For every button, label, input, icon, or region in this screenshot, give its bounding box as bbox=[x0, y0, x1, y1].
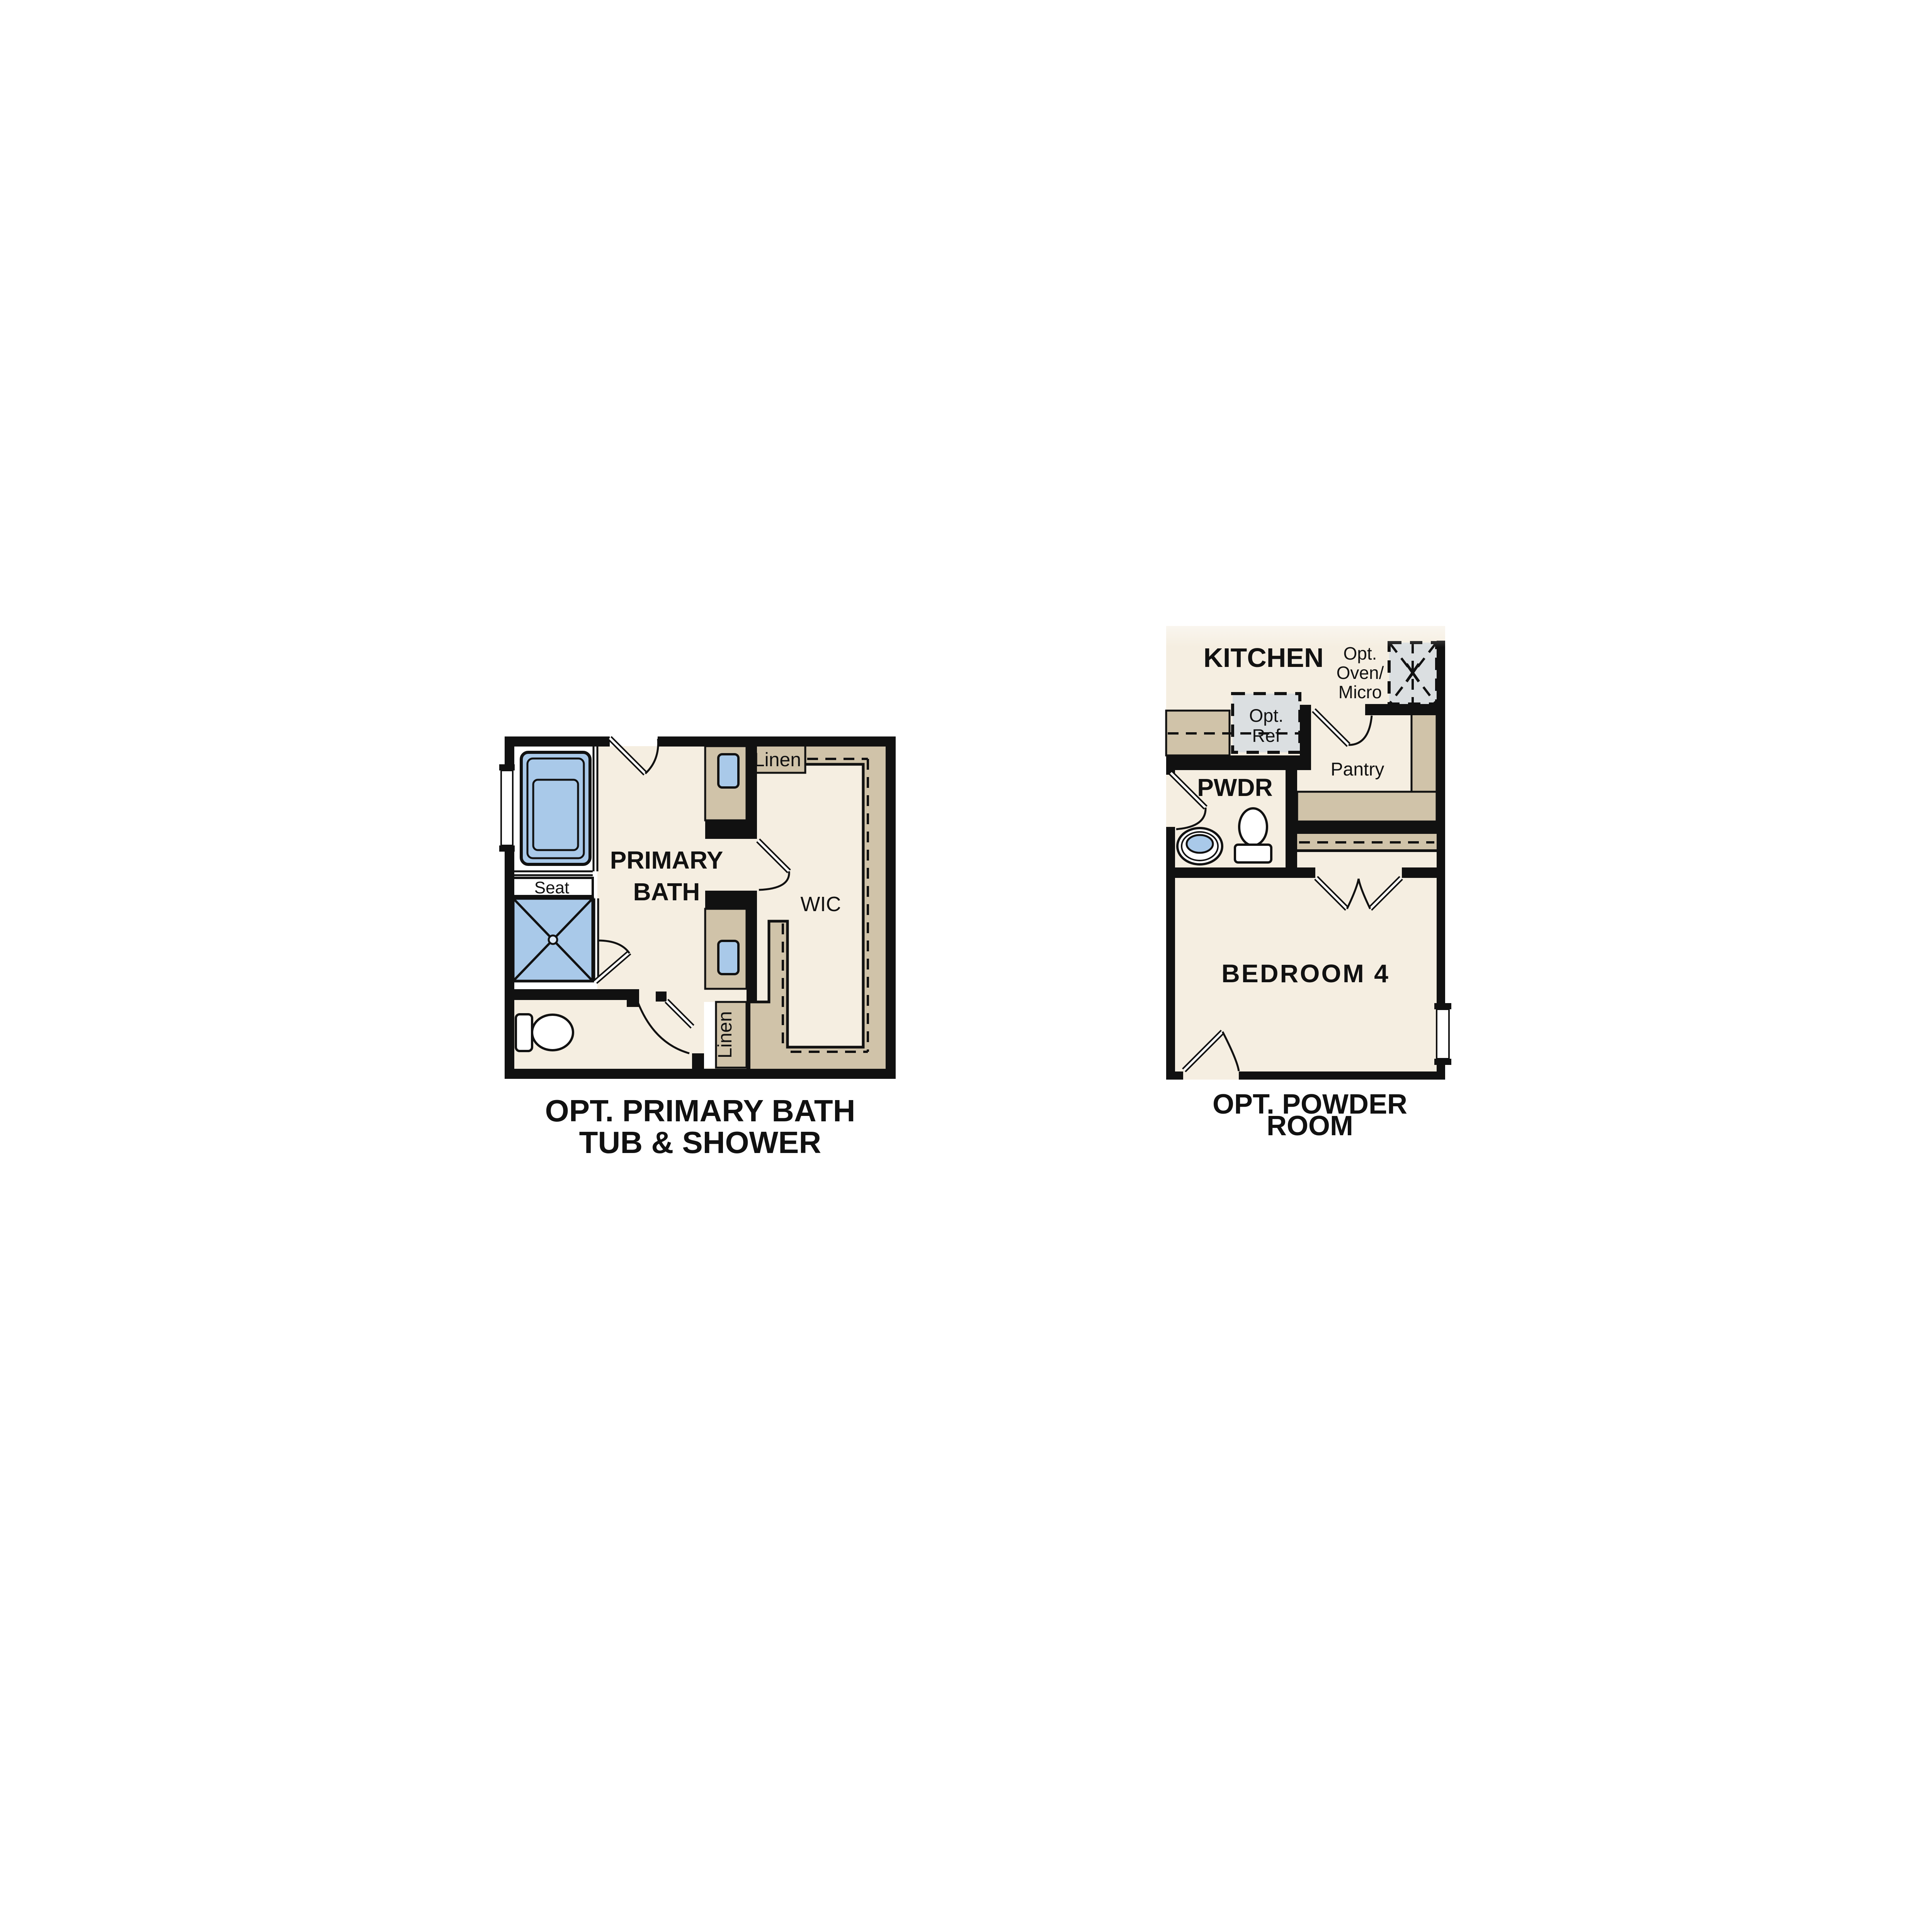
window-icon bbox=[499, 764, 515, 852]
opt-oven-label-2: Oven/ bbox=[1337, 663, 1384, 683]
sink-icon bbox=[718, 754, 738, 787]
page-canvas: Seat bbox=[0, 0, 1932, 1932]
primary-bath-floorplan: Seat bbox=[491, 726, 912, 1171]
linen-bottom-label: Linen bbox=[714, 1011, 736, 1058]
primary-bath-label-2: BATH bbox=[633, 878, 700, 906]
powder-room-floorplan: KITCHEN Opt. Oven/ Micro Opt. Ref Pantry… bbox=[1150, 601, 1466, 1157]
bedroom-label: BEDROOM 4 bbox=[1221, 959, 1390, 988]
opt-ref-label-1: Opt. bbox=[1249, 705, 1284, 726]
bathtub-icon bbox=[521, 752, 590, 864]
closet-shelf-strip bbox=[1297, 834, 1437, 852]
opt-oven-label-3: Micro bbox=[1338, 682, 1382, 702]
left-plan-title-line2: TUB & SHOWER bbox=[579, 1125, 821, 1160]
opt-oven-label-1: Opt. bbox=[1344, 643, 1377, 663]
right-plan-title-line2: ROOM bbox=[1267, 1111, 1353, 1141]
shower-seat: Seat bbox=[511, 871, 593, 897]
window-icon bbox=[1434, 1003, 1451, 1065]
linen-top-label: Linen bbox=[754, 749, 801, 770]
toilet-icon bbox=[1235, 808, 1271, 862]
seat-label: Seat bbox=[534, 878, 570, 897]
toilet-icon bbox=[516, 1014, 573, 1051]
shower-icon bbox=[513, 898, 598, 981]
left-plan-title-line1: OPT. PRIMARY BATH bbox=[545, 1094, 855, 1128]
sink-icon bbox=[718, 941, 738, 974]
opt-ref-label-2: Ref bbox=[1252, 725, 1281, 746]
vanity-bottom bbox=[705, 909, 747, 989]
kitchen-label: KITCHEN bbox=[1203, 643, 1323, 673]
wic-label: WIC bbox=[801, 893, 841, 916]
primary-bath-label-1: PRIMARY bbox=[610, 846, 723, 874]
pantry-label: Pantry bbox=[1331, 759, 1384, 780]
opt-oven-micro-box bbox=[1389, 643, 1437, 704]
crop-fade bbox=[1159, 601, 1466, 647]
pedestal-sink-icon bbox=[1177, 828, 1222, 864]
pwdr-label: PWDR bbox=[1197, 774, 1273, 801]
vanity-top bbox=[705, 746, 747, 820]
